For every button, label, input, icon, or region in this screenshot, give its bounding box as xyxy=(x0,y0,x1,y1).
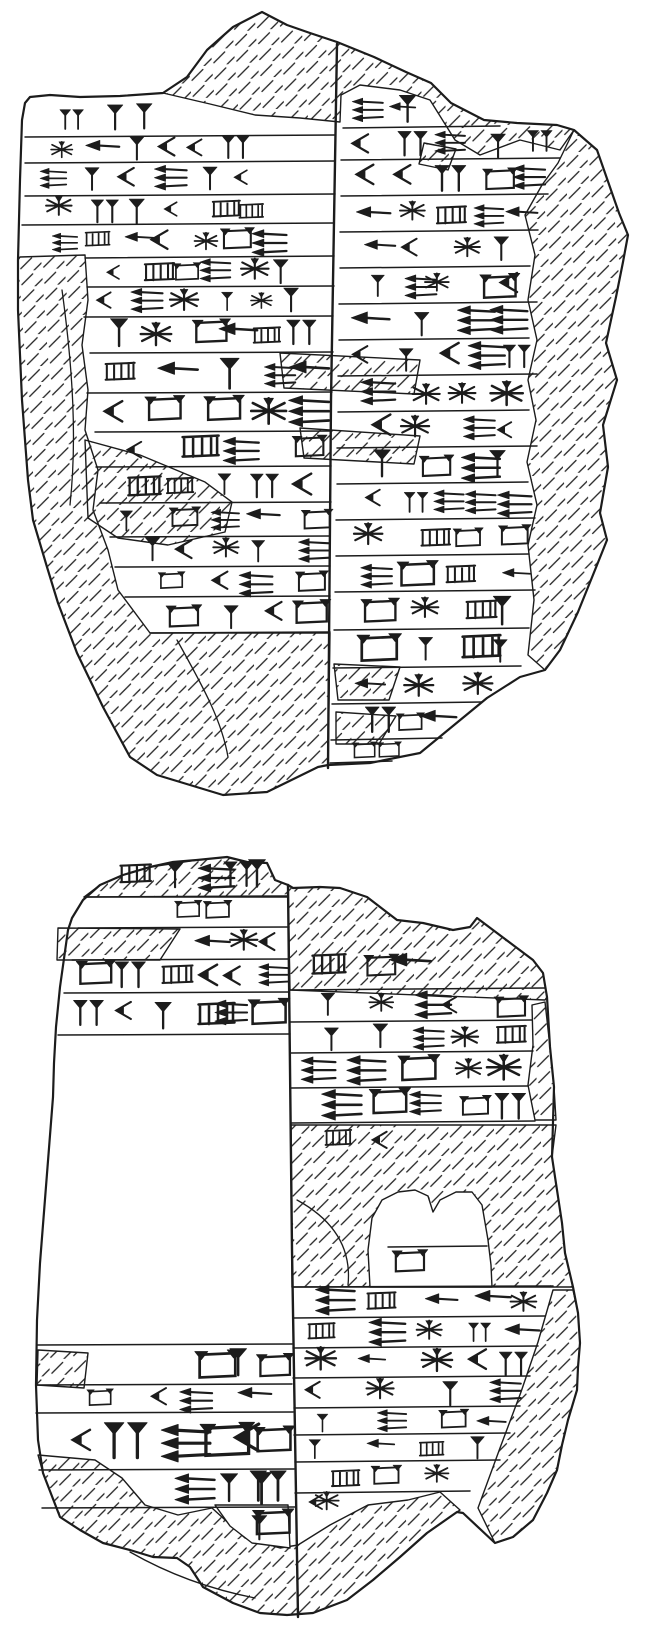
cuneiform-sign xyxy=(215,1000,247,1025)
broken-surface-hatching xyxy=(57,928,180,960)
cuneiform-sign xyxy=(239,572,272,598)
cuneiform-sign xyxy=(513,165,545,190)
cuneiform-sign xyxy=(180,1388,213,1413)
cuneiform-sign xyxy=(175,1474,215,1504)
cuneiform-sign xyxy=(252,230,287,257)
cuneiform-sign xyxy=(377,1410,406,1432)
cuneiform-sign xyxy=(497,491,531,517)
text-ruling-line xyxy=(58,1034,290,1035)
broken-surface-hatching xyxy=(37,1350,88,1388)
text-ruling-line xyxy=(84,316,333,317)
text-ruling-line xyxy=(87,392,332,393)
cuneiform-sign xyxy=(413,1027,444,1051)
cuneiform-sign xyxy=(434,490,464,513)
erased-patch xyxy=(368,1190,492,1287)
text-ruling-line xyxy=(87,286,334,287)
cuneiform-sign xyxy=(223,437,259,464)
cuneiform-sign xyxy=(301,1057,335,1083)
cuneiform-sign xyxy=(465,491,495,514)
text-ruling-line xyxy=(115,566,330,567)
cuneiform-sign xyxy=(457,306,494,335)
cuneiform-sign xyxy=(352,98,383,122)
cuneiform-sign xyxy=(347,1056,385,1086)
text-ruling-line xyxy=(84,896,288,897)
tablet-fragment-2 xyxy=(36,857,580,1617)
cuneiform-sign xyxy=(490,305,527,334)
cuneiform-sign xyxy=(298,539,329,563)
cuneiform-sign xyxy=(474,205,503,228)
text-ruling-line xyxy=(292,1286,553,1287)
cuneiform-sign xyxy=(409,1091,440,1115)
text-ruling-line xyxy=(100,502,331,503)
cuneiform-sign xyxy=(200,259,230,282)
cuneiform-sign xyxy=(322,1090,362,1121)
text-ruling-line xyxy=(96,466,331,467)
text-ruling-line xyxy=(37,1344,292,1345)
cuneiform-sign xyxy=(463,416,494,440)
text-ruling-line xyxy=(39,1469,294,1470)
text-ruling-line xyxy=(36,1384,292,1385)
cuneiform-sign xyxy=(289,396,329,427)
broken-surface-hatching xyxy=(280,353,420,394)
scanned-drawing-page xyxy=(0,0,664,1638)
cuneiform-sign xyxy=(490,1379,521,1403)
cuneiform-sign xyxy=(211,509,239,531)
cuneiform-sign xyxy=(161,1425,210,1462)
cuneiform-sign xyxy=(369,1318,405,1346)
cuneiform-sign xyxy=(40,168,66,188)
cuneiform-sign xyxy=(259,964,288,986)
tablet-fragment-1 xyxy=(18,12,628,795)
text-ruling-line xyxy=(150,632,330,633)
text-ruling-line xyxy=(78,927,289,928)
cuneiform-sign xyxy=(361,564,392,588)
text-ruling-line xyxy=(125,596,330,597)
broken-surface-hatching xyxy=(525,130,628,670)
text-ruling-line xyxy=(388,1246,487,1247)
cuneiform-sign xyxy=(316,1285,355,1315)
cuneiform-sign xyxy=(131,288,163,312)
cuneiform-sign xyxy=(461,453,499,483)
text-ruling-line xyxy=(90,352,333,353)
cuneiform-sign xyxy=(435,131,465,154)
text-ruling-line xyxy=(42,1507,295,1508)
cuneiform-sign xyxy=(154,165,186,190)
text-ruling-line xyxy=(95,431,332,432)
broken-surface-hatching xyxy=(288,885,547,1000)
tablet-drawing-canvas xyxy=(0,0,664,1638)
text-ruling-line xyxy=(64,992,289,993)
cuneiform-sign xyxy=(361,378,396,405)
text-ruling-line xyxy=(110,536,330,537)
cuneiform-sign xyxy=(52,233,77,252)
text-ruling-line xyxy=(36,1412,293,1413)
cuneiform-sign xyxy=(468,342,505,370)
